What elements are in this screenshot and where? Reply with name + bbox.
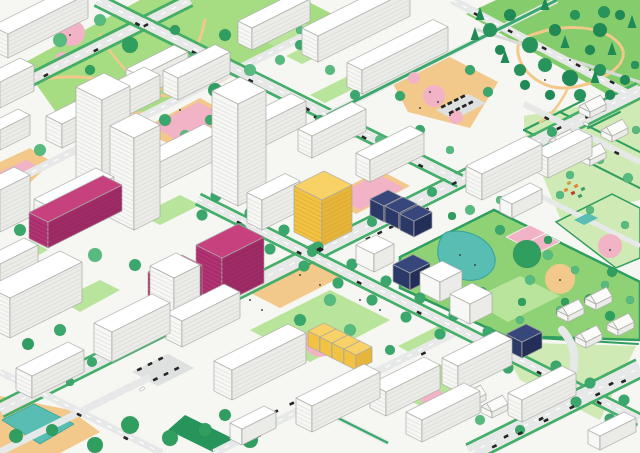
- pedestrians: [69, 34, 71, 36]
- forest-trees-a: [514, 64, 526, 76]
- west-big-trees: [121, 416, 139, 434]
- forest-trees-b: [605, 90, 615, 100]
- courtyard-trees-b: [475, 415, 485, 425]
- pedestrians: [474, 264, 476, 266]
- west-big-trees: [198, 423, 212, 437]
- forest-trees-b: [504, 9, 516, 21]
- west-big-trees: [219, 409, 231, 421]
- pond-park-trees: [607, 267, 617, 277]
- suburb-trees: [632, 126, 640, 134]
- forest-trees-a: [598, 6, 610, 18]
- pond-park-trees: [544, 236, 552, 244]
- forest-trees-b: [620, 75, 630, 85]
- suburb-trees: [543, 250, 553, 260]
- boulevard-tree-row-south: [401, 312, 412, 323]
- isometric-city-map-stage: [0, 0, 640, 453]
- boulevard-tree-row-north: [381, 276, 392, 287]
- park-trees-b: [219, 29, 231, 41]
- plaza-trees: [465, 65, 475, 75]
- forest-trees-b: [545, 90, 555, 100]
- forest-trees-a: [538, 58, 552, 72]
- pedestrians: [544, 79, 546, 81]
- courtyard-trees-a: [385, 345, 395, 355]
- boulevard-tree-row-north: [585, 378, 596, 389]
- courtyard-trees-a: [54, 324, 66, 336]
- plaza-trees: [483, 87, 493, 97]
- forest-trees-a: [631, 61, 639, 69]
- white-tower: [212, 77, 266, 206]
- pedestrians: [319, 284, 321, 286]
- pedestrians: [179, 109, 181, 111]
- pond-park-trees: [518, 298, 526, 306]
- courtyard-trees-b: [525, 275, 535, 285]
- main-road-verge-trees: [367, 217, 377, 227]
- suburb-trees: [626, 296, 634, 304]
- park-trees-a: [53, 33, 67, 47]
- courtyard-trees-b: [324, 294, 336, 306]
- pedestrians: [359, 299, 361, 301]
- suburb-trees: [586, 206, 594, 214]
- forest-trees-a: [522, 37, 538, 53]
- suburb-trees: [623, 173, 633, 183]
- courtyard-trees-b: [325, 65, 335, 75]
- west-big-trees: [22, 338, 34, 350]
- courtyard-trees-b: [34, 144, 46, 156]
- boulevard-tree-row-south: [367, 295, 378, 306]
- plaza-trees: [395, 91, 405, 101]
- suburb-trees: [621, 221, 629, 229]
- pond-park-trees: [605, 311, 615, 321]
- forest-trees-b: [495, 45, 505, 55]
- boulevard-tree-row-north: [619, 395, 630, 406]
- suburb-trees: [516, 316, 524, 324]
- west-big-trees: [162, 430, 178, 446]
- courtyard-trees-a: [495, 225, 505, 235]
- west-big-trees: [46, 424, 58, 436]
- pedestrians: [559, 279, 561, 281]
- pedestrians: [437, 101, 439, 103]
- main-road-verge-trees: [87, 357, 97, 367]
- pedestrians: [419, 107, 421, 109]
- pedestrians: [261, 309, 263, 311]
- plaza-pink-blob-3: [408, 72, 420, 84]
- park-trees-b: [85, 65, 95, 75]
- courtyard-trees-a: [129, 259, 141, 271]
- courtyard-trees-b: [275, 55, 285, 65]
- park-trees-b: [122, 37, 138, 53]
- boulevard-tree-row-south: [299, 261, 310, 272]
- pedestrians: [609, 249, 611, 251]
- courtyard-trees-a: [159, 114, 171, 126]
- pedestrians: [299, 274, 301, 276]
- sand-playground-circle: [545, 264, 575, 294]
- pedestrians: [569, 59, 571, 61]
- courtyard-trees-a: [294, 314, 306, 326]
- pedestrians: [249, 299, 251, 301]
- pedestrians: [429, 91, 431, 93]
- forest-trees-b: [549, 24, 561, 36]
- forest-trees-a: [570, 10, 580, 20]
- suburb-trees: [556, 191, 564, 199]
- pink-playground-circle-east: [598, 234, 622, 258]
- forest-trees-b: [585, 45, 595, 55]
- courtyard-trees-a: [350, 90, 360, 100]
- boulevard-tree-row-south: [265, 244, 276, 255]
- suburb-trees: [571, 266, 579, 274]
- west-big-trees: [9, 429, 23, 443]
- courtyard-trees-b: [88, 248, 102, 262]
- main-road-verge-trees: [427, 187, 437, 197]
- plaza-pink-blob-1: [423, 85, 445, 107]
- forest-trees-a: [483, 23, 497, 37]
- suburb-trees: [465, 205, 475, 215]
- suburb-trees: [566, 171, 574, 179]
- boulevard-tree-row-south: [333, 278, 344, 289]
- forest-trees-b: [593, 23, 607, 37]
- pond-park-trees: [513, 240, 541, 268]
- boulevard-tree-row-north: [279, 225, 290, 236]
- pedestrians: [459, 254, 461, 256]
- park-trees-b: [170, 25, 180, 35]
- pedestrians: [589, 69, 591, 71]
- forest-trees-b: [562, 70, 578, 86]
- isometric-city-map: [0, 0, 640, 453]
- forest-trees-b: [615, 10, 625, 20]
- park-trees-a: [244, 64, 256, 76]
- boulevard-tree-row-south: [435, 329, 446, 340]
- courtyard-trees-a: [14, 224, 26, 236]
- pond-park-trees: [448, 212, 456, 220]
- main-road-verge-trees: [547, 127, 557, 137]
- forest-trees-a: [574, 89, 586, 101]
- west-big-trees: [87, 437, 103, 453]
- courtyard-trees-b: [446, 146, 454, 154]
- yellow-tower: [294, 171, 352, 246]
- pedestrians: [379, 309, 381, 311]
- forest-trees-b: [520, 80, 530, 90]
- main-road-verge-trees: [307, 247, 317, 257]
- boulevard-tree-row-south: [197, 210, 208, 221]
- park-trees-a: [94, 14, 106, 26]
